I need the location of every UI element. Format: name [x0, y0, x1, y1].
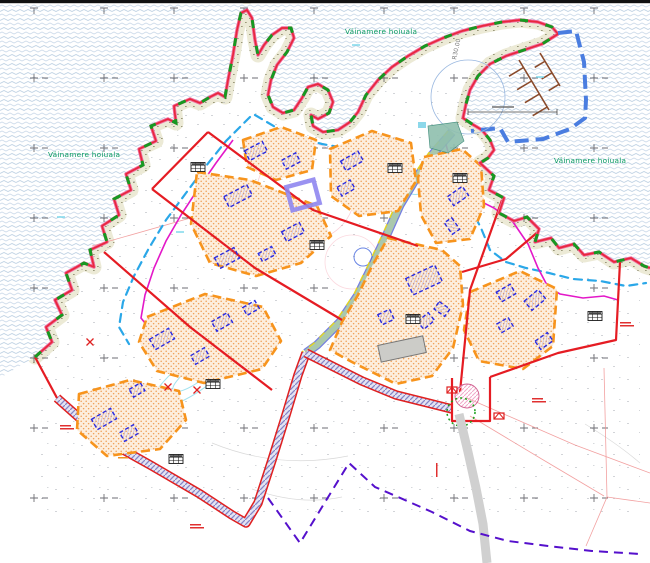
plot-info-table	[310, 241, 324, 250]
utility-area-circle	[455, 384, 479, 408]
plot-info-table	[588, 312, 602, 321]
survey-cross	[240, 74, 258, 82]
plot-info-table	[453, 174, 467, 183]
protected-area-label-top: Väinamere hoiuala	[345, 27, 417, 36]
base-layers	[0, 0, 650, 563]
survey-cross	[450, 74, 468, 82]
plot-info-table	[191, 163, 205, 172]
water-patch	[418, 122, 426, 128]
dimension-text-mark	[492, 106, 514, 108]
top-border-bar	[0, 0, 650, 3]
plan-drawing: Väinamere hoiuala Väinamere hoiuala Väin…	[0, 0, 650, 563]
plot-info-table	[169, 455, 183, 464]
plot-info-table	[406, 315, 420, 324]
protected-area-label-right: Väinamere hoiuala	[554, 156, 626, 165]
plot-info-table	[206, 380, 220, 389]
detail-plan-map: Väinamere hoiuala Väinamere hoiuala Väin…	[0, 0, 650, 563]
protected-area-label-left: Väinamere hoiuala	[48, 150, 120, 159]
plot-info-table	[388, 164, 402, 173]
